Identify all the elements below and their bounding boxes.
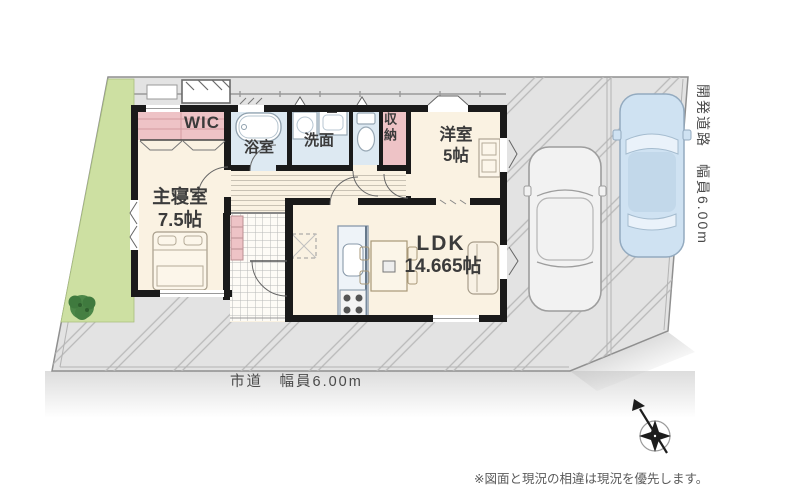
east-road-label: 開発道路 幅員6.00m [696,84,710,245]
room-size-western-room: 5帖 [414,148,498,165]
floorplan-page: WIC 浴室 洗面 収納 洋室 5帖 主寝室 7.5帖 LDK 14.665帖 … [0,0,800,500]
car-top-view-blue-icon [613,94,691,257]
room-size-master-bedroom: 7.5帖 [140,211,220,230]
room-label-master-bedroom: 主寝室 [140,188,220,207]
room-label-wic: WIC [180,114,224,131]
vanity-sink [319,108,347,135]
disclaimer-note: ※図面と現況の相違は現況を優先します。 [474,473,708,486]
bathtub [236,113,281,141]
car-top-view-icon [524,147,606,311]
room-label-storage: 収納 [383,112,396,144]
floor-plan-drawing [0,0,800,500]
room-label-bathroom: 浴室 [230,140,288,155]
kitchen-counter [338,226,368,321]
garden-area [61,79,134,322]
room-label-ldk: LDK [408,233,474,254]
room-label-western-room: 洋室 [414,127,498,144]
room-size-ldk: 14.665帖 [388,257,498,276]
shoe-cabinet [231,216,243,260]
room-label-washroom: 洗面 [289,133,349,148]
stove [340,290,366,318]
south-road-label: 市道 幅員6.00m [230,375,363,390]
toilet [357,113,375,151]
bed [153,232,207,290]
